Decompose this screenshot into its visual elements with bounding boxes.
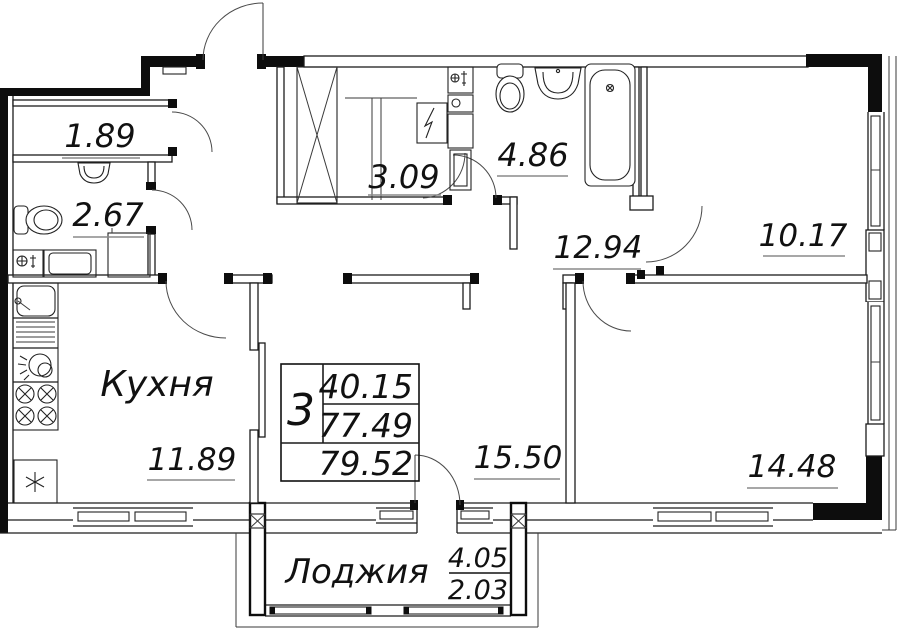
loggia-pillar-right bbox=[511, 503, 526, 615]
summary-table: 3 40.15 77.49 79.52 bbox=[281, 364, 419, 483]
window-bedroom2 bbox=[864, 112, 886, 230]
area-wc: 2.67 bbox=[72, 196, 144, 234]
stove bbox=[16, 385, 56, 425]
bathroom-door-arc bbox=[453, 155, 496, 198]
wall-pier-right bbox=[866, 230, 884, 302]
entrance-door bbox=[203, 3, 263, 60]
loggia-door-opening bbox=[410, 500, 464, 535]
summary-living-area: 40.15 bbox=[319, 367, 413, 406]
area-living: 15.50 bbox=[474, 440, 563, 476]
area-wardrobe: 3.09 bbox=[368, 158, 439, 196]
bedroom2-door-arc bbox=[646, 206, 702, 262]
interior-walls bbox=[8, 67, 867, 503]
washbasin-wc bbox=[78, 163, 110, 183]
area-bedroom1: 14.48 bbox=[748, 449, 837, 485]
window-bedroom1-bottom bbox=[653, 506, 773, 528]
floor-plan: 1.89 2.67 3.09 4.86 12.94 10.17 Кухня 11… bbox=[0, 0, 900, 632]
refrigerator bbox=[14, 460, 57, 503]
kitchen-counter bbox=[13, 283, 58, 430]
area-hallway: 12.94 bbox=[554, 230, 643, 266]
bedroom1-door-arc bbox=[583, 281, 631, 331]
laundry-sink bbox=[13, 250, 43, 277]
vent-shaft bbox=[297, 67, 337, 203]
electric-panel bbox=[417, 103, 447, 143]
kitchen-sink bbox=[15, 286, 55, 316]
loggia-door bbox=[415, 455, 460, 505]
boiler bbox=[108, 228, 150, 277]
window-living-right bbox=[457, 508, 493, 523]
wc-door-arc bbox=[152, 190, 192, 230]
toilet-wc bbox=[14, 206, 62, 234]
summary-area-without-loggia: 77.49 bbox=[319, 406, 413, 445]
washbasin-bathroom bbox=[535, 68, 581, 99]
burner-symbol bbox=[13, 354, 58, 382]
floor-plan-drawing: 1.89 2.67 3.09 4.86 12.94 10.17 Кухня 11… bbox=[0, 0, 900, 632]
area-bathroom: 4.86 bbox=[497, 136, 568, 174]
window-living-left bbox=[376, 508, 417, 523]
summary-rooms-count: 3 bbox=[287, 385, 315, 436]
area-kitchen: 11.89 bbox=[148, 442, 237, 478]
kitchen-door-arc bbox=[166, 281, 226, 338]
loggia-pillar-left bbox=[250, 503, 265, 615]
entrance-jamb-left bbox=[196, 54, 205, 69]
label-kitchen: Кухня bbox=[100, 364, 213, 405]
window-kitchen bbox=[73, 506, 193, 528]
window-bedroom1 bbox=[864, 302, 886, 456]
washing-machine bbox=[44, 250, 96, 277]
dish-rack bbox=[13, 318, 58, 348]
bathtub bbox=[585, 64, 635, 186]
summary-total-area: 79.52 bbox=[319, 444, 413, 483]
toilet-bathroom bbox=[496, 64, 524, 112]
utility-column bbox=[448, 67, 473, 190]
area-bedroom2: 10.17 bbox=[759, 218, 848, 254]
label-loggia: Лоджия bbox=[283, 552, 428, 592]
area-loggia-counted: 2.03 bbox=[448, 575, 508, 606]
wall-niche bbox=[163, 67, 186, 74]
area-storage: 1.89 bbox=[64, 117, 135, 155]
storage-door-arc bbox=[172, 112, 212, 152]
area-loggia-full: 4.05 bbox=[448, 543, 508, 574]
